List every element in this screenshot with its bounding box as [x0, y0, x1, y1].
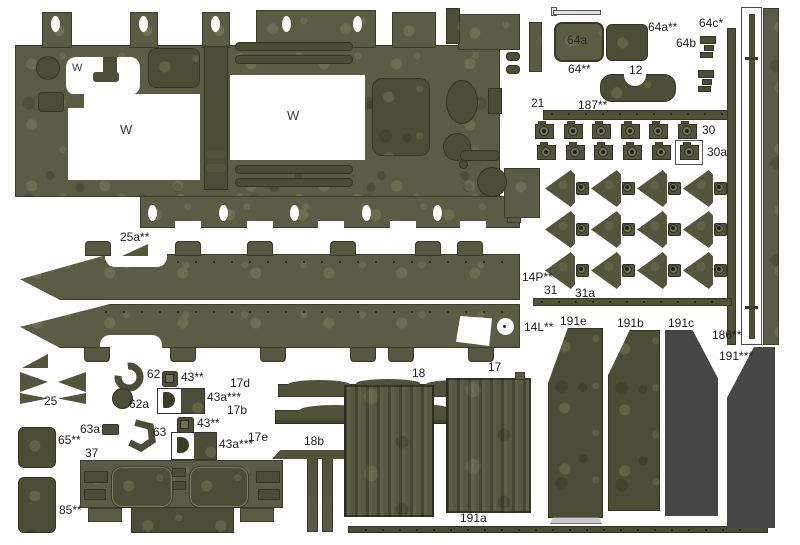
skirt-tab — [350, 347, 376, 362]
loose-plate-part — [504, 168, 540, 218]
stud-part-30a — [652, 145, 671, 160]
part-label-191a: 191a — [460, 512, 487, 525]
sheet-tab-hole — [282, 16, 291, 32]
sheet-tab-hole — [433, 205, 442, 221]
sheet-tab-hole — [148, 205, 157, 221]
part-label-191x: 191*** — [719, 350, 753, 363]
track-wedge-tab-31a — [576, 264, 589, 277]
wedge-25 — [58, 372, 86, 392]
part-label-191c: 191c — [668, 317, 694, 330]
stud-part-30a-boxed — [680, 145, 699, 160]
rail-strip-191a — [348, 526, 768, 533]
stud-ring — [684, 147, 694, 157]
part-label-64a2: 64a** — [648, 21, 677, 34]
tab-dot — [625, 226, 629, 230]
skirt-tab — [457, 241, 483, 256]
track-wedge-part-31 — [545, 211, 575, 248]
window-label: W — [120, 123, 132, 137]
wide-rail — [763, 8, 779, 345]
skirt-tab — [84, 347, 110, 362]
strip-part-18b — [307, 450, 318, 532]
skirt-panel-191x — [727, 347, 775, 528]
tab-ring — [669, 224, 678, 233]
sheet-edge-notch — [318, 221, 344, 229]
tab-ring — [669, 183, 678, 192]
sheet-edge-notch — [390, 221, 416, 229]
track-wedge-part-31 — [591, 252, 621, 289]
stud-part-30 — [535, 124, 554, 139]
hull-sheet-top-step — [458, 14, 520, 50]
part-label-31a: 31a — [575, 287, 595, 300]
hull-sheet-top-detail — [446, 8, 460, 44]
track-wedge-part-31 — [591, 211, 621, 248]
stud-ring — [568, 126, 578, 136]
window-label: W — [287, 109, 299, 123]
part-label-17: 17 — [488, 361, 501, 374]
grille-panel-17 — [446, 378, 531, 513]
window-label: W — [72, 62, 82, 74]
stud-dot — [628, 129, 632, 133]
skirt-panel-191e — [548, 328, 603, 518]
tab-ring — [669, 265, 678, 274]
wedge-single — [22, 354, 48, 368]
stud-ring — [539, 126, 549, 136]
deck-detail — [258, 489, 280, 500]
skirt-tab — [170, 347, 196, 362]
track-wedge-part-31 — [637, 252, 667, 289]
tab-ring — [623, 183, 632, 192]
part-label-31: 31 — [544, 284, 557, 297]
part-label-63: 63 — [153, 426, 166, 439]
model-parts-sheet: W W W 25a** 14P** 31 31a 14L** 25 62 62a… — [0, 0, 800, 545]
plate-part-63a — [102, 424, 119, 435]
stud-part-30 — [649, 124, 668, 139]
sheet-tab-hole — [211, 16, 220, 32]
part-label-18: 18 — [412, 367, 425, 380]
stud-part-30 — [678, 124, 697, 139]
track-wedge-tab-31a — [668, 223, 681, 236]
skirt-strip-14p — [20, 254, 520, 300]
clip-part-64b — [704, 45, 714, 51]
clip-part-64c — [698, 86, 711, 92]
tab-ring — [577, 183, 586, 192]
part-label-25a: 25a** — [120, 231, 149, 244]
hook-shape — [177, 437, 189, 453]
detail-pill — [235, 42, 353, 51]
bracket-strip — [553, 10, 601, 15]
skirt-panel-191b — [608, 330, 660, 511]
part-label-63a: 63a — [80, 423, 100, 436]
wedge-25 — [58, 393, 86, 404]
stud-ring — [570, 147, 580, 157]
tab-ring — [715, 224, 724, 233]
tab-ring — [623, 265, 632, 274]
tab-dot — [671, 226, 675, 230]
pad-part-65 — [18, 427, 56, 468]
skirt-tab — [85, 241, 111, 256]
part-label-64a: 64a — [567, 34, 587, 47]
stud-ring — [598, 147, 608, 157]
part-label-187: 187** — [578, 99, 607, 112]
clamp-part-43 — [162, 371, 178, 387]
tab-dot — [579, 267, 583, 271]
part-label-18b: 18b — [304, 435, 324, 448]
deck-foot — [240, 508, 274, 522]
sheet-tab-hole — [290, 205, 299, 221]
tab-dot — [671, 267, 675, 271]
deck-detail — [84, 489, 106, 500]
clamp-inner — [180, 420, 189, 429]
skirt-tab — [260, 347, 286, 362]
rail-strip-187 — [543, 110, 731, 120]
skirt-tab — [175, 241, 201, 256]
sheet-edge-notch — [175, 221, 201, 229]
boxed-part-43a — [157, 388, 205, 414]
clamp-inner — [165, 374, 174, 383]
part-label-37: 37 — [85, 447, 98, 460]
detail-pill — [206, 150, 226, 158]
deck-detail — [84, 471, 108, 483]
detail-pill — [235, 165, 353, 174]
stud-dot — [601, 150, 605, 154]
detail-pill — [506, 65, 520, 74]
part-label-85: 85** — [59, 504, 82, 517]
part-label-191b: 191b — [617, 317, 644, 330]
detail-plate — [148, 48, 200, 88]
tab-dot — [717, 185, 721, 189]
panel-tab — [515, 372, 525, 380]
deck-foot — [88, 508, 122, 522]
tab-dot — [579, 185, 583, 189]
part-label-30a: 30a — [707, 146, 727, 159]
track-wedge-part-31 — [683, 170, 713, 207]
stud-dot — [685, 129, 689, 133]
skirt-tab — [330, 241, 356, 256]
deck-detail — [172, 468, 186, 477]
strip-part-18b — [322, 450, 333, 532]
stud-ring — [656, 147, 666, 157]
part-label-64: 64** — [568, 63, 591, 76]
stud-dot — [659, 150, 663, 154]
stud-ring — [596, 126, 606, 136]
stud-part-30a — [537, 145, 556, 160]
skirt-tab — [415, 241, 441, 256]
stud-part-30a — [566, 145, 585, 160]
deck-detail — [256, 471, 280, 483]
loose-plate-foot — [507, 217, 521, 223]
sheet-tab-hole — [139, 16, 148, 32]
skirt-tab — [247, 241, 273, 256]
track-wedge-tab-31a — [714, 182, 727, 195]
stud-dot — [630, 150, 634, 154]
part-label-43: 43** — [181, 371, 204, 384]
pad-part-85 — [18, 477, 56, 533]
deck-lower-plate — [131, 507, 234, 533]
deck-hatch — [190, 467, 248, 507]
part-label-30: 30 — [702, 124, 715, 137]
hull-sheet-tab — [392, 12, 436, 48]
skirt-cutout-quad — [456, 316, 492, 346]
track-wedge-part-31 — [683, 252, 713, 289]
sheet-edge-notch — [247, 221, 273, 229]
part-label-43: 43** — [197, 417, 220, 430]
tab-ring — [577, 224, 586, 233]
track-wedge-tab-31a — [576, 182, 589, 195]
part-label-65: 65** — [58, 434, 81, 447]
track-wedge-tab-31a — [622, 264, 635, 277]
part-label-25: 25 — [44, 395, 57, 408]
cutout-corner-notch — [68, 94, 84, 108]
stud-dot — [573, 150, 577, 154]
stud-part-30a — [623, 145, 642, 160]
tab-dot — [671, 185, 675, 189]
sheet-tab-hole — [362, 205, 371, 221]
track-wedge-part-31 — [683, 211, 713, 248]
box-part-64a2 — [606, 24, 648, 61]
deck-hatch — [112, 467, 172, 507]
tab-dot — [717, 226, 721, 230]
tab-ring — [715, 183, 724, 192]
tab-ring — [623, 224, 632, 233]
detail-pill — [460, 150, 500, 161]
bar-part-21 — [529, 22, 542, 72]
stud-part-30 — [592, 124, 611, 139]
stud-ring — [625, 126, 635, 136]
part-label-21: 21 — [531, 97, 544, 110]
detail-circle-small — [459, 160, 468, 169]
detail-pill — [506, 52, 520, 61]
track-wedge-part-31 — [591, 170, 621, 207]
sheet-tab-hole — [353, 16, 362, 32]
detail-pill — [235, 55, 353, 64]
track-wedge-tab-31a — [576, 223, 589, 236]
part-label-191e: 191e — [560, 315, 587, 328]
window-cutout-left — [68, 94, 200, 180]
detail-plate — [38, 92, 64, 112]
detail-oval — [446, 80, 478, 124]
skirt-panel-191c — [665, 330, 718, 516]
clip-part-64b — [700, 52, 713, 58]
tab-dot — [579, 226, 583, 230]
track-wedge-tab-31a — [668, 182, 681, 195]
hook-shape — [163, 392, 175, 408]
stud-part-30a — [594, 145, 613, 160]
part-label-64c: 64c* — [699, 17, 723, 30]
tab-ring — [715, 265, 724, 274]
tab-ring — [577, 265, 586, 274]
boxed-square — [194, 433, 216, 459]
clip-part-64c — [702, 79, 712, 85]
part-label-17e: 17e — [248, 431, 268, 444]
detail-pill — [206, 164, 226, 172]
deck-detail — [172, 481, 186, 490]
stud-dot — [544, 150, 548, 154]
stud-ring — [627, 147, 637, 157]
thin-rail — [749, 14, 755, 339]
sheet-tab-hole — [51, 16, 60, 32]
part-label-17d: 17d — [230, 377, 250, 390]
stud-part-30 — [564, 124, 583, 139]
stud-ring — [541, 147, 551, 157]
part-label-17b: 17b — [227, 404, 247, 417]
part-label-186: 186** — [712, 329, 741, 342]
tab-dot — [717, 267, 721, 271]
tab-dot — [625, 185, 629, 189]
tab-dot — [625, 267, 629, 271]
part-label-12: 12 — [629, 64, 642, 77]
stud-dot — [571, 129, 575, 133]
stud-dot — [687, 150, 691, 154]
skirt-strip-14l — [20, 304, 520, 348]
skirt-cutout-dot — [503, 325, 506, 328]
track-wedge-tab-31a — [668, 264, 681, 277]
hatch-circle — [36, 56, 60, 80]
track-wedge-tab-31a — [622, 223, 635, 236]
boxed-part-43a — [171, 432, 217, 460]
stud-dot — [599, 129, 603, 133]
detail-rect — [488, 88, 502, 114]
skirt-panel-base — [550, 517, 602, 524]
boxed-square — [181, 389, 204, 413]
cutout-hook-foot — [93, 72, 119, 82]
part-label-14l: 14L** — [524, 321, 553, 334]
stud-part-30 — [621, 124, 640, 139]
track-wedge-part-31 — [637, 211, 667, 248]
track-wedge-part-31 — [545, 170, 575, 207]
track-wedge-tab-31a — [714, 264, 727, 277]
track-wedge-tab-31a — [622, 182, 635, 195]
rail-strip-lower — [533, 298, 732, 306]
part-label-62a: 62a — [129, 398, 149, 411]
sheet-edge-notch — [460, 221, 486, 229]
part-label-62: 62 — [147, 368, 160, 381]
stud-ring — [682, 126, 692, 136]
rail-tick — [745, 57, 758, 60]
clip-part-64c — [698, 70, 714, 78]
track-wedge-part-31 — [637, 170, 667, 207]
track-wedge-tab-31a — [714, 223, 727, 236]
detail-circle — [477, 167, 507, 197]
stud-dot — [656, 129, 660, 133]
stud-ring — [653, 126, 663, 136]
skirt-tab — [388, 347, 414, 362]
clip-part-64b — [700, 36, 716, 44]
grille-panel-18 — [344, 385, 434, 517]
rail-tick — [745, 306, 758, 309]
wave-bump — [288, 380, 350, 389]
sheet-tab-hole — [219, 205, 228, 221]
stud-dot — [542, 129, 546, 133]
detail-pill — [235, 178, 353, 187]
part-label-64b: 64b — [676, 37, 696, 50]
wedge-25 — [20, 372, 48, 392]
engine-plate — [372, 78, 430, 156]
